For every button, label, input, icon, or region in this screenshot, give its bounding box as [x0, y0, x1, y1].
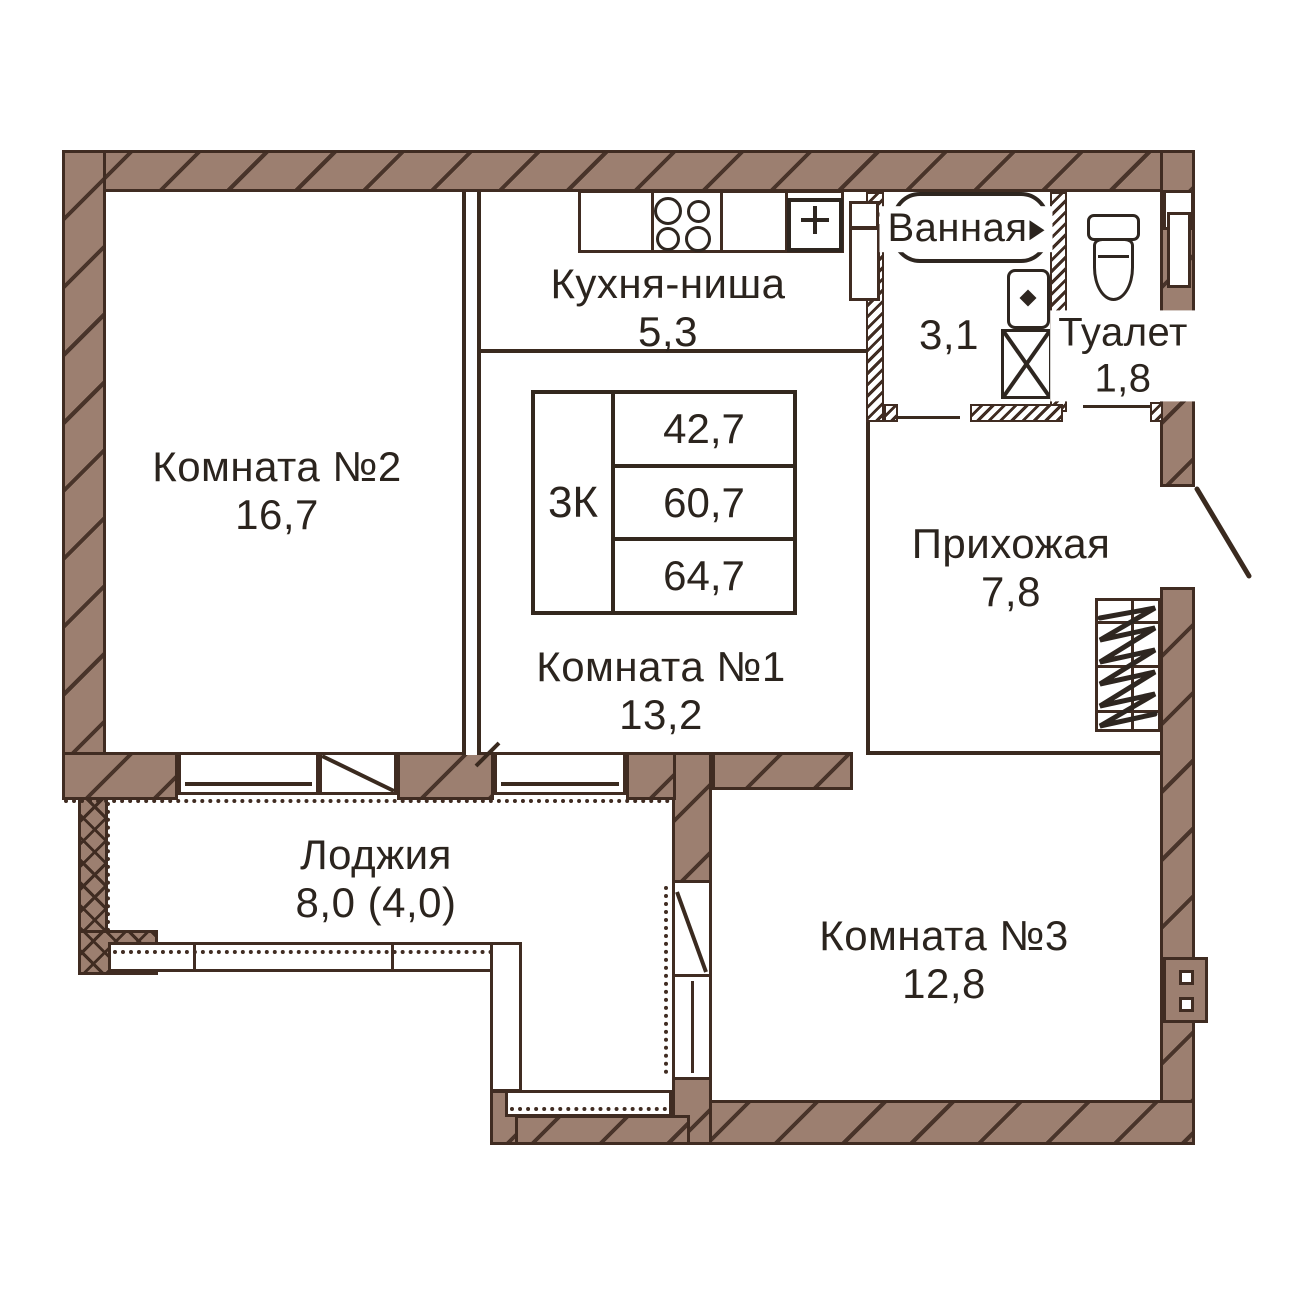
areas-column: 42,7 60,7 64,7	[615, 394, 793, 611]
wall-toilet-corner	[1150, 402, 1163, 422]
loggia-step-window	[505, 1090, 672, 1117]
area-cell: 60,7	[615, 464, 793, 538]
total-area-cell: 64,7	[615, 537, 793, 611]
room-label-room3: Комната №3 12,8	[819, 912, 1069, 1008]
room-area: 7,8	[912, 568, 1111, 616]
wall-room2-bottom-a	[62, 752, 178, 800]
toilet-icon	[1093, 238, 1134, 301]
vent-hole	[1179, 997, 1194, 1012]
room-area: 12,8	[819, 960, 1069, 1008]
apartment-summary-table: 3К 42,7 60,7 64,7	[531, 390, 797, 615]
stove-icon	[687, 200, 710, 223]
wall-bottom-room3	[680, 1100, 1195, 1145]
wall-loggia-room3-upper	[672, 752, 712, 883]
loggia-glazing-dots	[113, 950, 517, 954]
room-name: Лоджия	[296, 831, 457, 879]
room-name: Комната №2	[152, 443, 402, 491]
room-name: Туалет	[1058, 310, 1188, 356]
faucet-icon	[1030, 221, 1045, 241]
line-hallway-room3	[870, 751, 1160, 755]
line-bathroom-threshold	[898, 416, 960, 419]
wardrobe-shelf	[1098, 665, 1158, 668]
loggia-glazing-bottom	[108, 942, 522, 972]
room-name: Кухня-ниша	[550, 260, 785, 308]
line-room1-hallway	[866, 422, 870, 755]
room-name: Прихожая	[912, 520, 1111, 568]
glazing-mullion	[391, 945, 394, 969]
balcony-unit-dots	[664, 886, 668, 1074]
room-area: 5,3	[550, 308, 785, 356]
loggia-glazing-right	[490, 942, 522, 1092]
loggia-step-window-dots	[510, 1107, 667, 1111]
balcony-unit-room3	[672, 883, 712, 1077]
vent-shaft-icon	[1163, 957, 1208, 1023]
line-toilet-threshold	[1083, 405, 1150, 408]
entry-door-icon	[1197, 489, 1249, 576]
room-label-toilet: Туалет 1,8	[1050, 310, 1196, 401]
window-room1	[494, 752, 626, 795]
loggia-sill-dots-left	[106, 802, 110, 932]
sink-plus-icon	[813, 206, 817, 234]
washing-machine-icon	[1001, 329, 1052, 399]
wall-loggia-step	[490, 1115, 690, 1145]
balcony-unit-mullion	[691, 981, 694, 1073]
wardrobe-shelf	[1098, 621, 1158, 624]
window-sill-bar	[501, 782, 619, 786]
balcony-unit-divider	[675, 974, 709, 977]
counter-divider	[720, 193, 723, 250]
room-label-hallway: Прихожая 7,8	[912, 520, 1111, 616]
room-area: 8,0 (4,0)	[296, 879, 457, 927]
wall-room2-divider	[462, 192, 481, 755]
wall-left	[62, 150, 106, 800]
room-label-room2: Комната №2 16,7	[152, 443, 402, 539]
vent-shaft	[1167, 212, 1191, 288]
wall-hallway-room3	[712, 752, 853, 790]
room-name: Комната №1	[536, 643, 786, 691]
wardrobe-icon	[1095, 598, 1161, 732]
stove-icon	[685, 226, 711, 252]
wall-top	[62, 150, 1195, 192]
toilet-icon	[1087, 214, 1140, 241]
living-area-cell: 42,7	[615, 394, 793, 464]
wall-room1-bottom-c	[626, 752, 676, 800]
wall-bathroom-bottom	[970, 404, 1063, 422]
stove-icon	[654, 197, 682, 225]
floor-plan: Комната №2 16,7 Кухня-ниша 5,3 Комната №…	[0, 0, 1300, 1300]
balcony-door-room2	[319, 752, 397, 795]
room-area-bathroom: 3,1	[919, 311, 979, 359]
window-room2	[178, 752, 319, 795]
room-area: 13,2	[536, 691, 786, 739]
room-name: Комната №3	[819, 912, 1069, 960]
glazing-mullion	[193, 945, 196, 969]
room-area: 1,8	[1058, 356, 1188, 402]
counter-divider	[651, 193, 654, 250]
room-label-loggia: Лоджия 8,0 (4,0)	[296, 831, 457, 927]
wall-room2-bottom-b	[397, 752, 494, 800]
toilet-seat-line	[1098, 255, 1129, 258]
kitchen-sink-icon	[787, 198, 843, 252]
room-label-kitchen: Кухня-ниша 5,3	[550, 260, 785, 356]
apartment-type-cell: 3К	[535, 394, 615, 611]
stove-icon	[656, 227, 680, 251]
window-sill-dots	[64, 799, 670, 803]
vent-hole	[1179, 970, 1194, 985]
window-sill-bar	[185, 782, 312, 786]
wardrobe-shelf	[1098, 710, 1158, 713]
wall-bathroom-door-jamb	[884, 404, 898, 422]
room-label-bathroom: Ванная	[879, 206, 1052, 252]
room-area: 16,7	[152, 491, 402, 539]
room-label-room1: Комната №1 13,2	[536, 643, 786, 739]
room-area: 3,1	[919, 311, 979, 359]
wall-right-lower	[1160, 587, 1195, 1145]
duct-shaft	[849, 201, 879, 229]
duct-shaft	[849, 227, 880, 301]
room-name: Ванная	[887, 206, 1027, 250]
